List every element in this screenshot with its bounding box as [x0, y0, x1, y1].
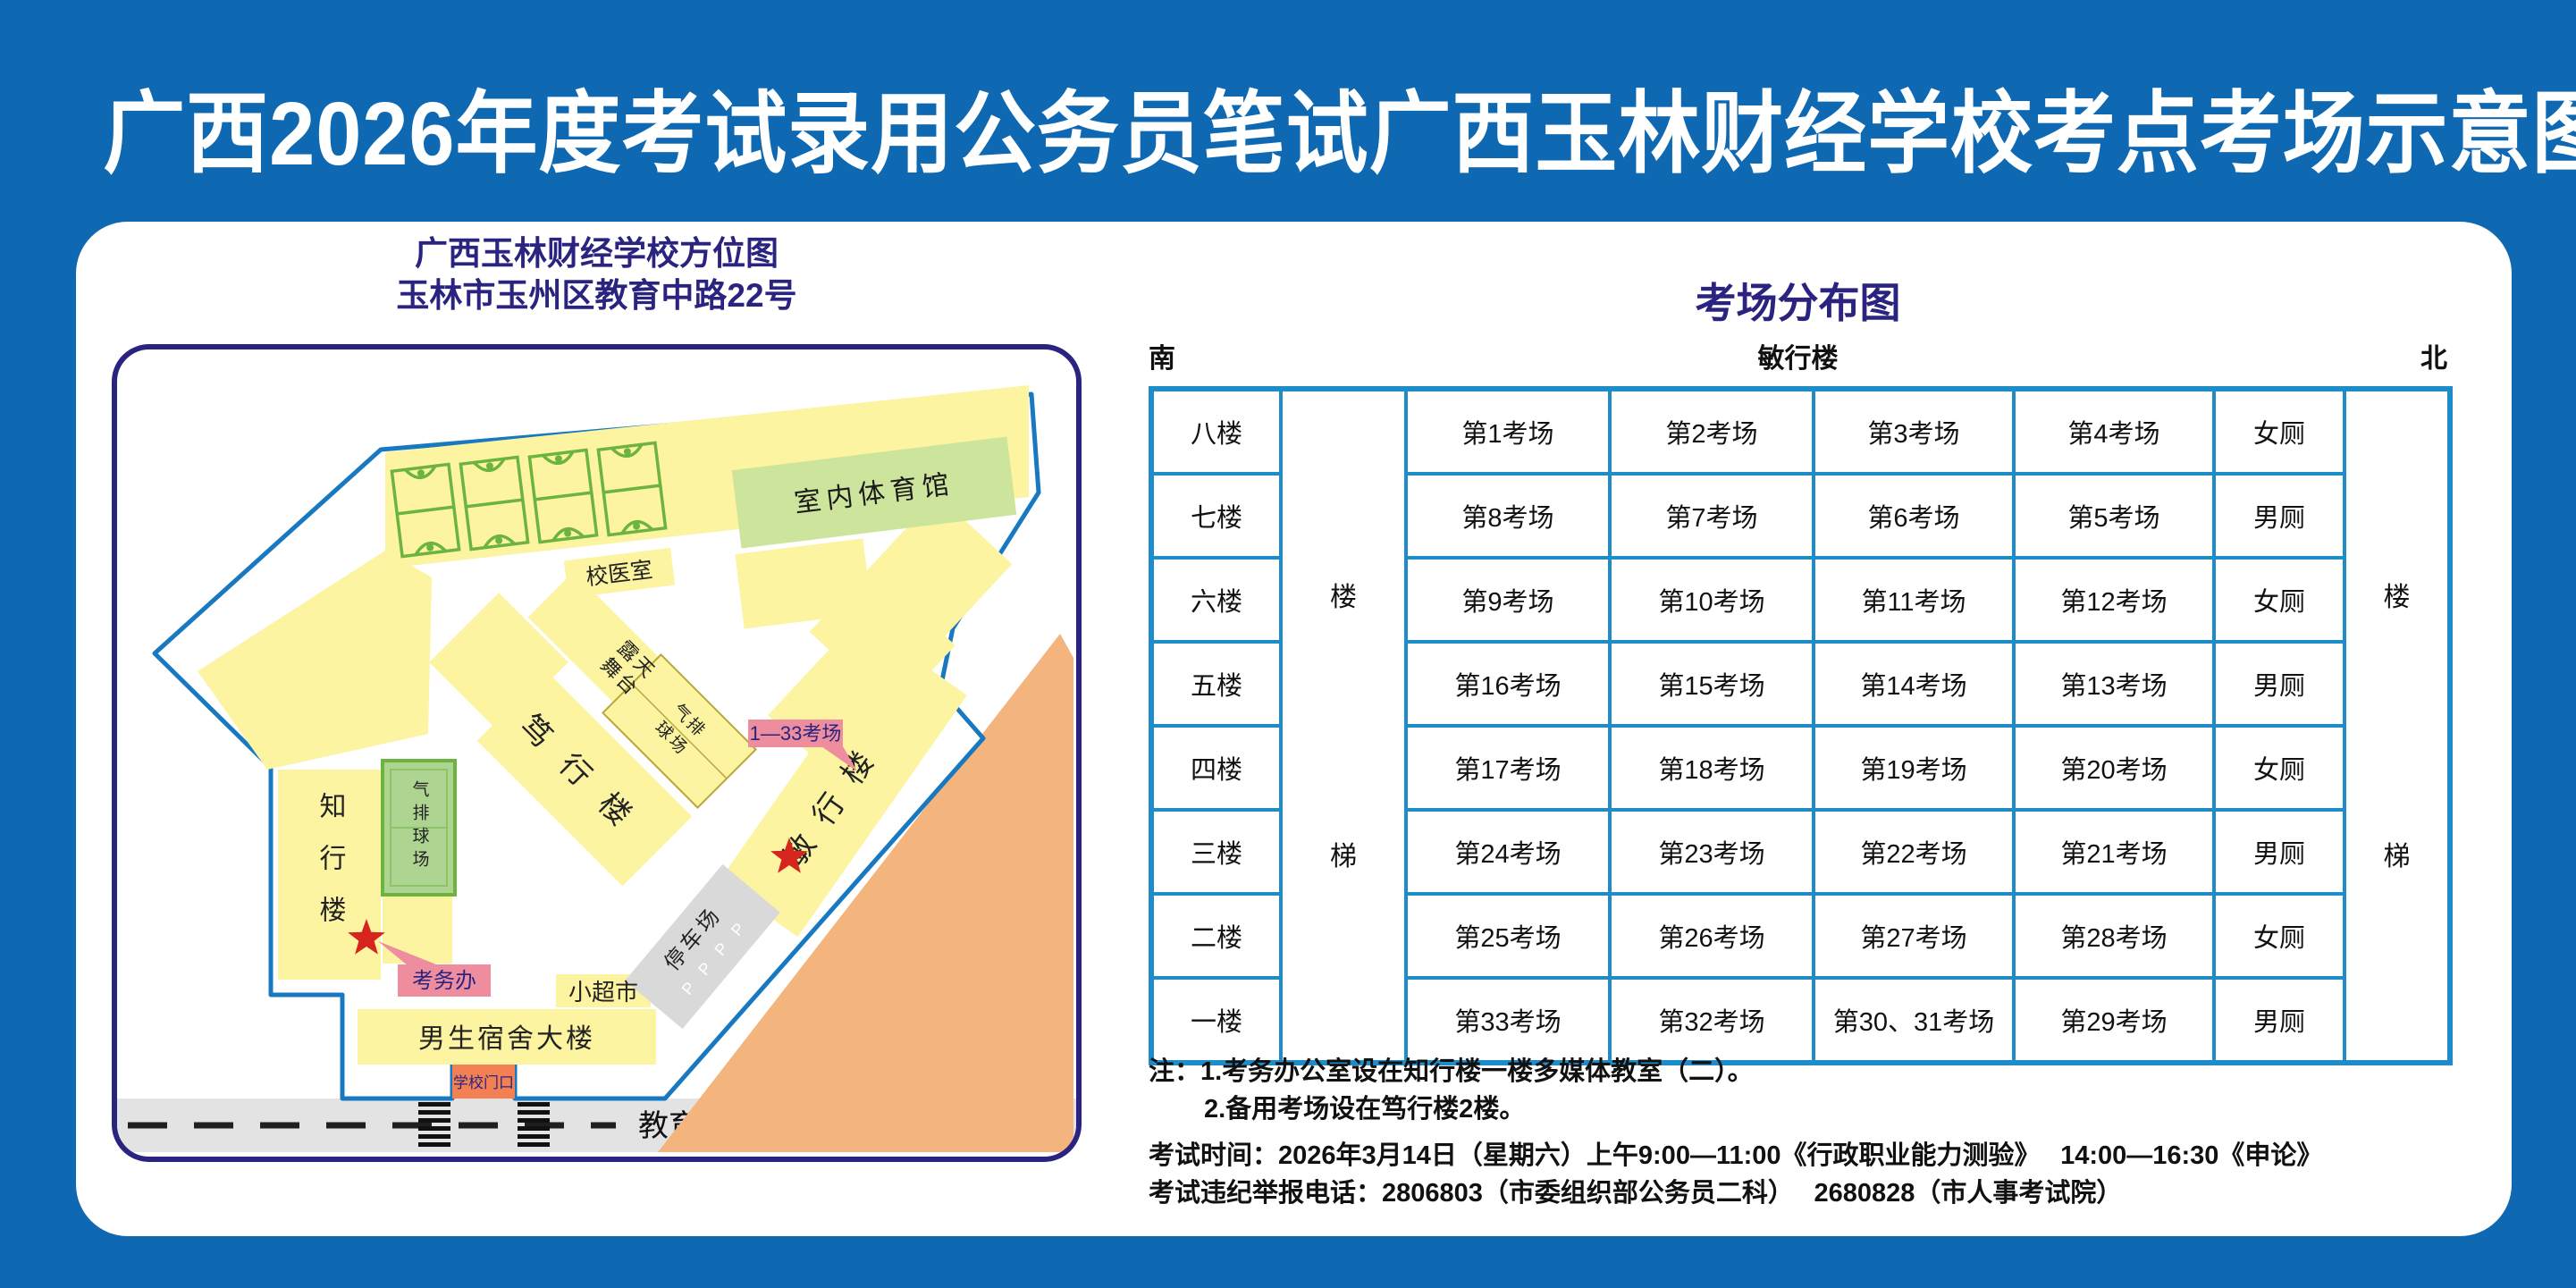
- room-cell: 第20考场: [2014, 726, 2214, 810]
- map-subtitle-line1: 广西玉林财经学校方位图: [112, 232, 1082, 274]
- rooms-callout-label: 1—33考场: [750, 722, 842, 745]
- campus-map: 教育中路: [117, 349, 1076, 1157]
- distribution-header: 南 敏行楼 北: [1149, 336, 2447, 375]
- floor-cell: 二楼: [1151, 894, 1281, 978]
- table-row: 八楼 楼 梯 第1考场 第2考场 第3考场 第4考场 女厕 楼 梯: [1151, 389, 2450, 474]
- room-distribution-table: 八楼 楼 梯 第1考场 第2考场 第3考场 第4考场 女厕 楼 梯 七楼 第8考…: [1149, 386, 2453, 1065]
- room-cell: 第14考场: [1814, 642, 2014, 726]
- room-cell: 第4考场: [2014, 389, 2214, 474]
- room-cell: 第2考场: [1610, 389, 1814, 474]
- toilet-cell: 女厕: [2214, 558, 2344, 642]
- room-cell: 第7考场: [1610, 474, 1814, 558]
- room-cell: 第12考场: [2014, 558, 2214, 642]
- room-cell: 第17考场: [1406, 726, 1610, 810]
- stair-label-top: 楼: [2346, 575, 2447, 614]
- floor-cell: 一楼: [1151, 978, 1281, 1063]
- room-cell: 第5考场: [2014, 474, 2214, 558]
- room-cell: 第19考场: [1814, 726, 2014, 810]
- stairwell-west-cell: 楼 梯: [1281, 389, 1406, 1063]
- room-cell: 第25考场: [1406, 894, 1610, 978]
- floor-cell: 四楼: [1151, 726, 1281, 810]
- school-gate-label: 学校门口: [453, 1074, 514, 1091]
- page-title: 广西2026年度考试录用公务员笔试广西玉林财经学校考点考场示意图: [103, 61, 2472, 190]
- room-cell: 第8考场: [1406, 474, 1610, 558]
- room-cell: 第30、31考场: [1814, 978, 2014, 1063]
- direction-south-label: 南: [1149, 336, 1175, 375]
- map-subtitle: 广西玉林财经学校方位图 玉林市玉州区教育中路22号: [112, 232, 1082, 316]
- stairwell-east-cell: 楼 梯: [2344, 389, 2450, 1063]
- room-cell: 第13考场: [2014, 642, 2214, 726]
- room-cell: 第16考场: [1406, 642, 1610, 726]
- room-cell: 第28考场: [2014, 894, 2214, 978]
- room-cell: 第23考场: [1610, 810, 1814, 894]
- supermarket-label: 小超市: [568, 979, 638, 1006]
- room-cell: 第15考场: [1610, 642, 1814, 726]
- floor-cell: 七楼: [1151, 474, 1281, 558]
- campus-map-frame: 教育中路: [112, 344, 1082, 1162]
- volleyball-court: 气排球场: [383, 761, 455, 895]
- floor-cell: 五楼: [1151, 642, 1281, 726]
- room-cell: 第6考场: [1814, 474, 2014, 558]
- exam-office-label: 考务办: [412, 969, 476, 993]
- distribution-building-label: 敏行楼: [1758, 336, 1839, 375]
- room-cell: 第29考场: [2014, 978, 2214, 1063]
- distribution-title: 考场分布图: [1149, 271, 2447, 330]
- room-cell: 第3考场: [1814, 389, 2014, 474]
- room-cell: 第10考场: [1610, 558, 1814, 642]
- stair-label-top: 楼: [1283, 575, 1404, 614]
- room-cell: 第9考场: [1406, 558, 1610, 642]
- stair-label-bottom: 梯: [1283, 834, 1404, 873]
- exam-time-line: 考试时间：2026年3月14日（星期六）上午9:00—11:00《行政职业能力测…: [1149, 1137, 2489, 1174]
- room-cell: 第26考场: [1610, 894, 1814, 978]
- toilet-cell: 男厕: [2214, 978, 2344, 1063]
- toilet-cell: 女厕: [2214, 894, 2344, 978]
- volleyball-label: 气排球场: [410, 780, 430, 873]
- notes-block: 注：1.考务办公室设在知行楼一楼多媒体教室（二）。 2.备用考场设在笃行楼2楼。…: [1149, 1053, 2489, 1212]
- toilet-cell: 女厕: [2214, 726, 2344, 810]
- room-cell: 第1考场: [1406, 389, 1610, 474]
- room-cell: 第11考场: [1814, 558, 2014, 642]
- stair-label-bottom: 梯: [2346, 834, 2447, 873]
- floor-cell: 八楼: [1151, 389, 1281, 474]
- zhixing-label: 知行楼: [316, 792, 347, 947]
- map-subtitle-line2: 玉林市玉州区教育中路22号: [112, 274, 1082, 316]
- toilet-cell: 男厕: [2214, 810, 2344, 894]
- room-cell: 第27考场: [1814, 894, 2014, 978]
- room-cell: 第18考场: [1610, 726, 1814, 810]
- room-cell: 第33考场: [1406, 978, 1610, 1063]
- room-cell: 第21考场: [2014, 810, 2214, 894]
- toilet-cell: 男厕: [2214, 474, 2344, 558]
- floor-cell: 六楼: [1151, 558, 1281, 642]
- floor-cell: 三楼: [1151, 810, 1281, 894]
- content-panel: 广西玉林财经学校方位图 玉林市玉州区教育中路22号 教育中路: [76, 222, 2512, 1236]
- hotline-line: 考试违纪举报电话：2806803（市委组织部公务员二科） 2680828（市人事…: [1149, 1174, 2489, 1212]
- room-cell: 第24考场: [1406, 810, 1610, 894]
- toilet-cell: 男厕: [2214, 642, 2344, 726]
- room-cell: 第22考场: [1814, 810, 2014, 894]
- direction-north-label: 北: [2420, 336, 2447, 375]
- dorm-label: 男生宿舍大楼: [418, 1024, 595, 1054]
- toilet-cell: 女厕: [2214, 389, 2344, 474]
- room-cell: 第32考场: [1610, 978, 1814, 1063]
- note-line-1: 注：1.考务办公室设在知行楼一楼多媒体教室（二）。: [1149, 1053, 2489, 1090]
- note-line-2: 2.备用考场设在笃行楼2楼。: [1149, 1090, 2489, 1128]
